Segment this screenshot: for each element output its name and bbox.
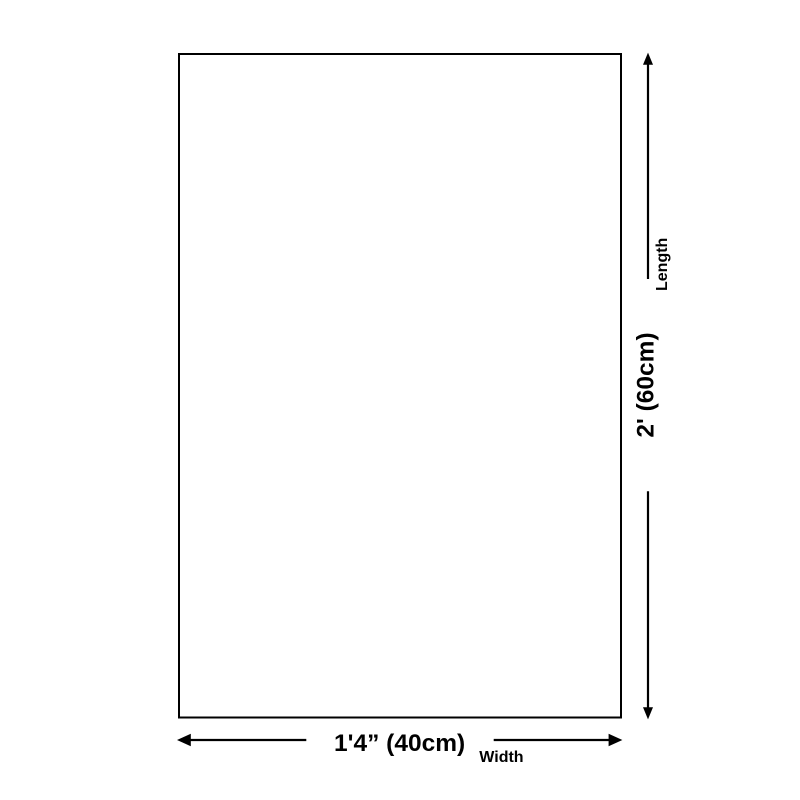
svg-text:2' (60cm): 2' (60cm) — [633, 332, 660, 437]
svg-text:1'4” (40cm): 1'4” (40cm) — [334, 730, 465, 757]
svg-text:Width: Width — [479, 749, 523, 766]
svg-text:Length: Length — [654, 238, 671, 291]
